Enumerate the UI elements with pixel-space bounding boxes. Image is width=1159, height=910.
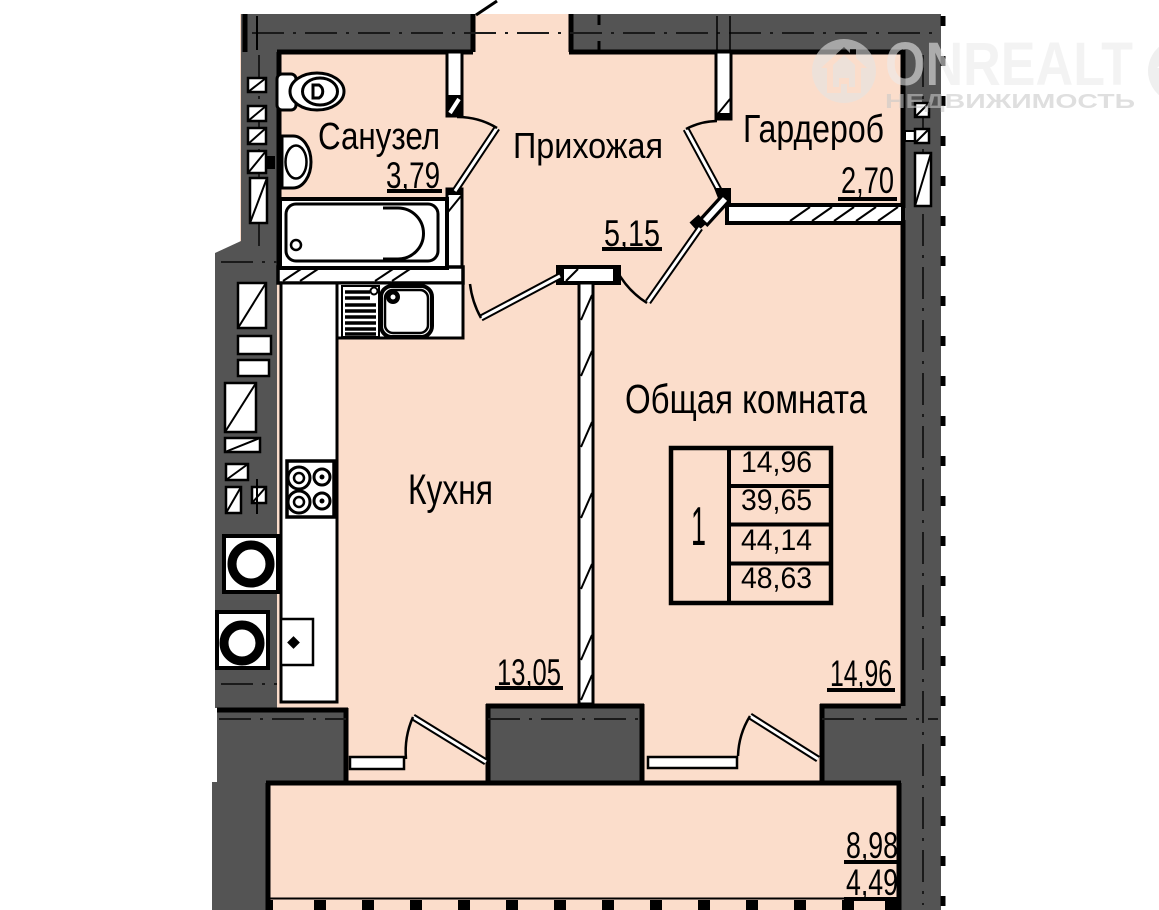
svg-text:НЕДВИЖИМОСТЬ: НЕДВИЖИМОСТЬ: [885, 91, 1135, 113]
svg-text:14,96: 14,96: [830, 653, 892, 694]
svg-text:8,98: 8,98: [846, 825, 898, 866]
svg-text:Кухня: Кухня: [408, 466, 493, 514]
svg-text:14,96: 14,96: [741, 446, 812, 479]
svg-text:39,65: 39,65: [741, 484, 812, 517]
svg-text:Общая комната: Общая комната: [625, 376, 867, 422]
svg-text:2,70: 2,70: [841, 160, 894, 201]
svg-text:4,49: 4,49: [846, 862, 898, 903]
svg-text:44,14: 44,14: [741, 524, 812, 557]
svg-text:Прихожая: Прихожая: [513, 125, 663, 166]
svg-text:1: 1: [691, 495, 706, 557]
svg-text:Гардероб: Гардероб: [743, 108, 884, 151]
svg-text:ONREALT: ONREALT: [885, 30, 1133, 98]
svg-text:48,63: 48,63: [741, 562, 812, 595]
svg-text:Санузел: Санузел: [318, 116, 440, 158]
